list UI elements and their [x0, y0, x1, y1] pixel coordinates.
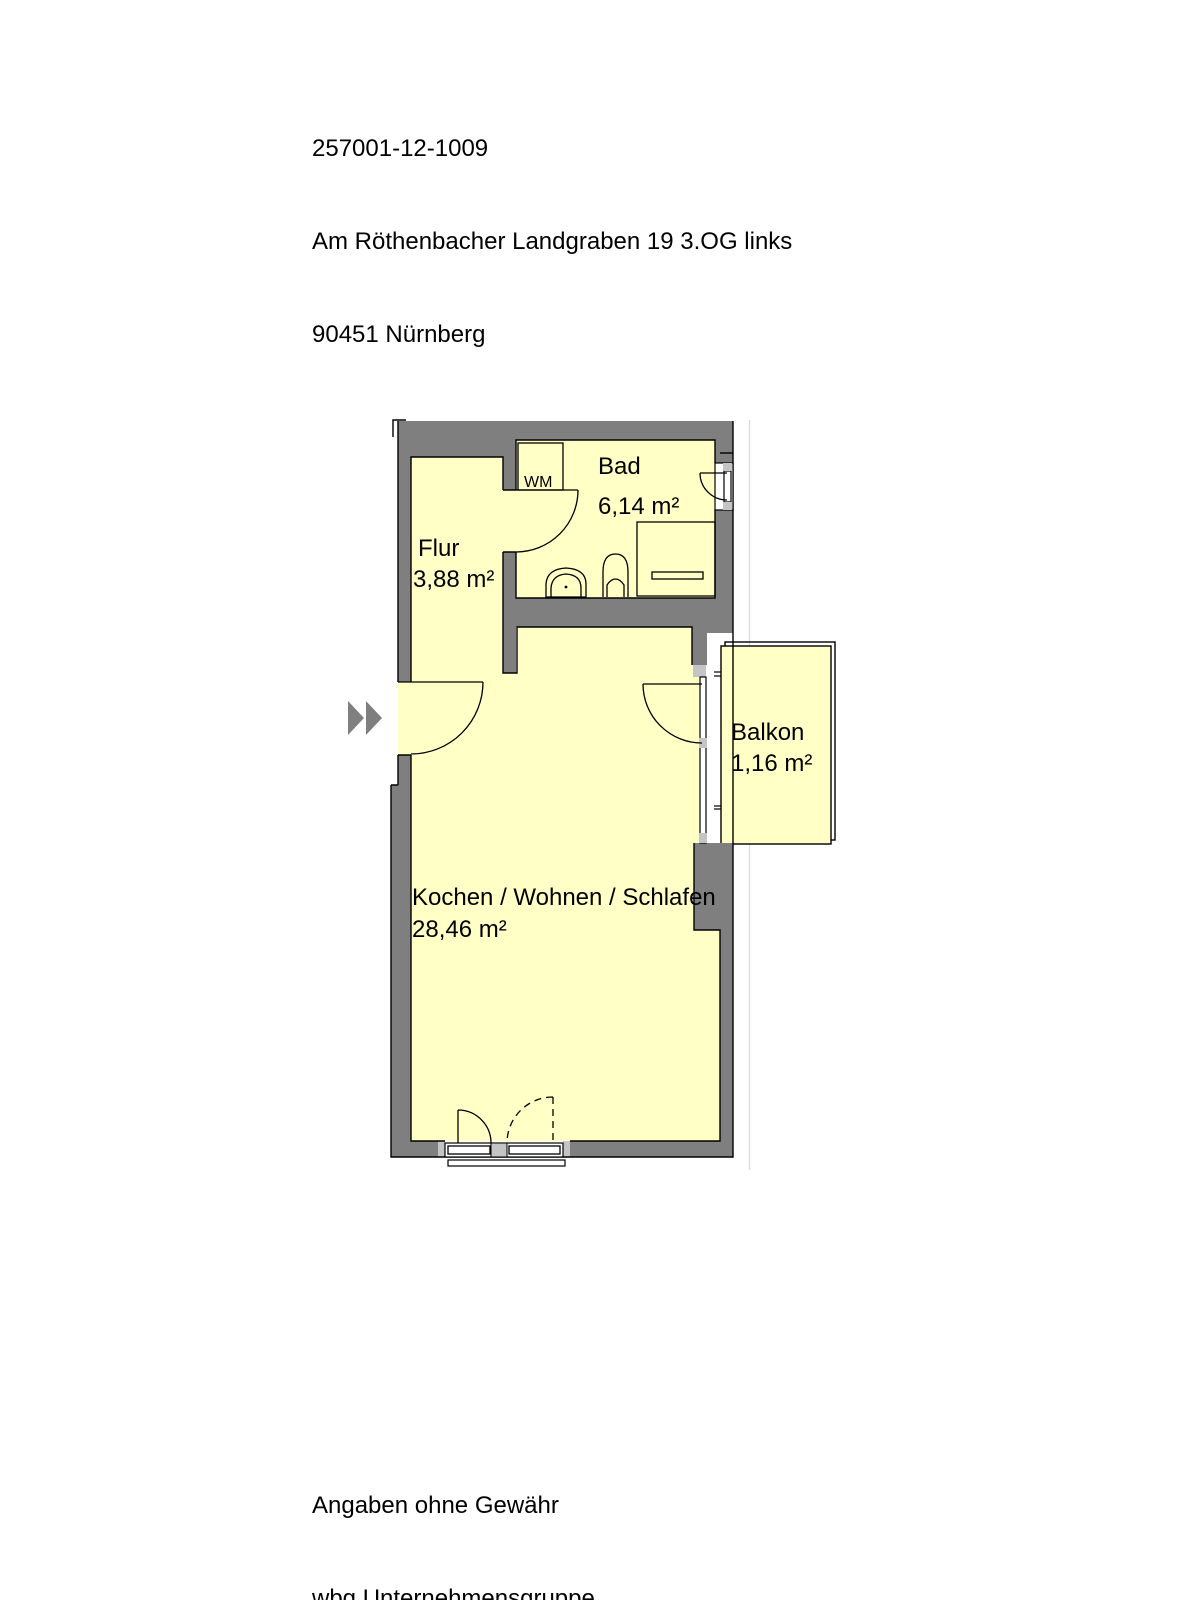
balcony-anchor-ticks [714, 672, 721, 809]
room-main-label: Kochen / Wohnen / Schlafen [412, 884, 716, 911]
sink-drain [565, 586, 568, 589]
company-name: wbg Unternehmensgruppe [312, 1583, 595, 1600]
bath-door-gap [503, 490, 516, 552]
entry-door-gap [398, 682, 411, 755]
washing-machine-label: WM [524, 474, 552, 491]
floor-plan-page: 257001-12-1009 Am Röthenbacher Landgrabe… [0, 0, 1200, 1600]
disclaimer-text: Angaben ohne Gewähr [312, 1490, 595, 1521]
disclaimer-footer: Angaben ohne Gewähr wbg Unternehmensgrup… [312, 1428, 595, 1600]
room-bad-area: 6,14 m² [598, 493, 679, 520]
room-flur-area: 3,88 m² [413, 566, 494, 593]
bath-window-glass [724, 471, 731, 502]
room-balkon-area: 1,16 m² [731, 750, 812, 777]
window-sill [448, 1160, 565, 1166]
room-balkon-label: Balkon [731, 719, 804, 746]
room-flur-label: Flur [418, 535, 459, 562]
room-bad-label: Bad [598, 453, 641, 480]
floor-plan-drawing: WM Bad 6,14 m² Flur 3,88 m² Balkon 1,16 … [0, 0, 1200, 1600]
entrance-arrow-icon [348, 701, 382, 735]
balcony-door-glass [700, 677, 706, 843]
room-main-area: 28,46 m² [412, 916, 507, 943]
